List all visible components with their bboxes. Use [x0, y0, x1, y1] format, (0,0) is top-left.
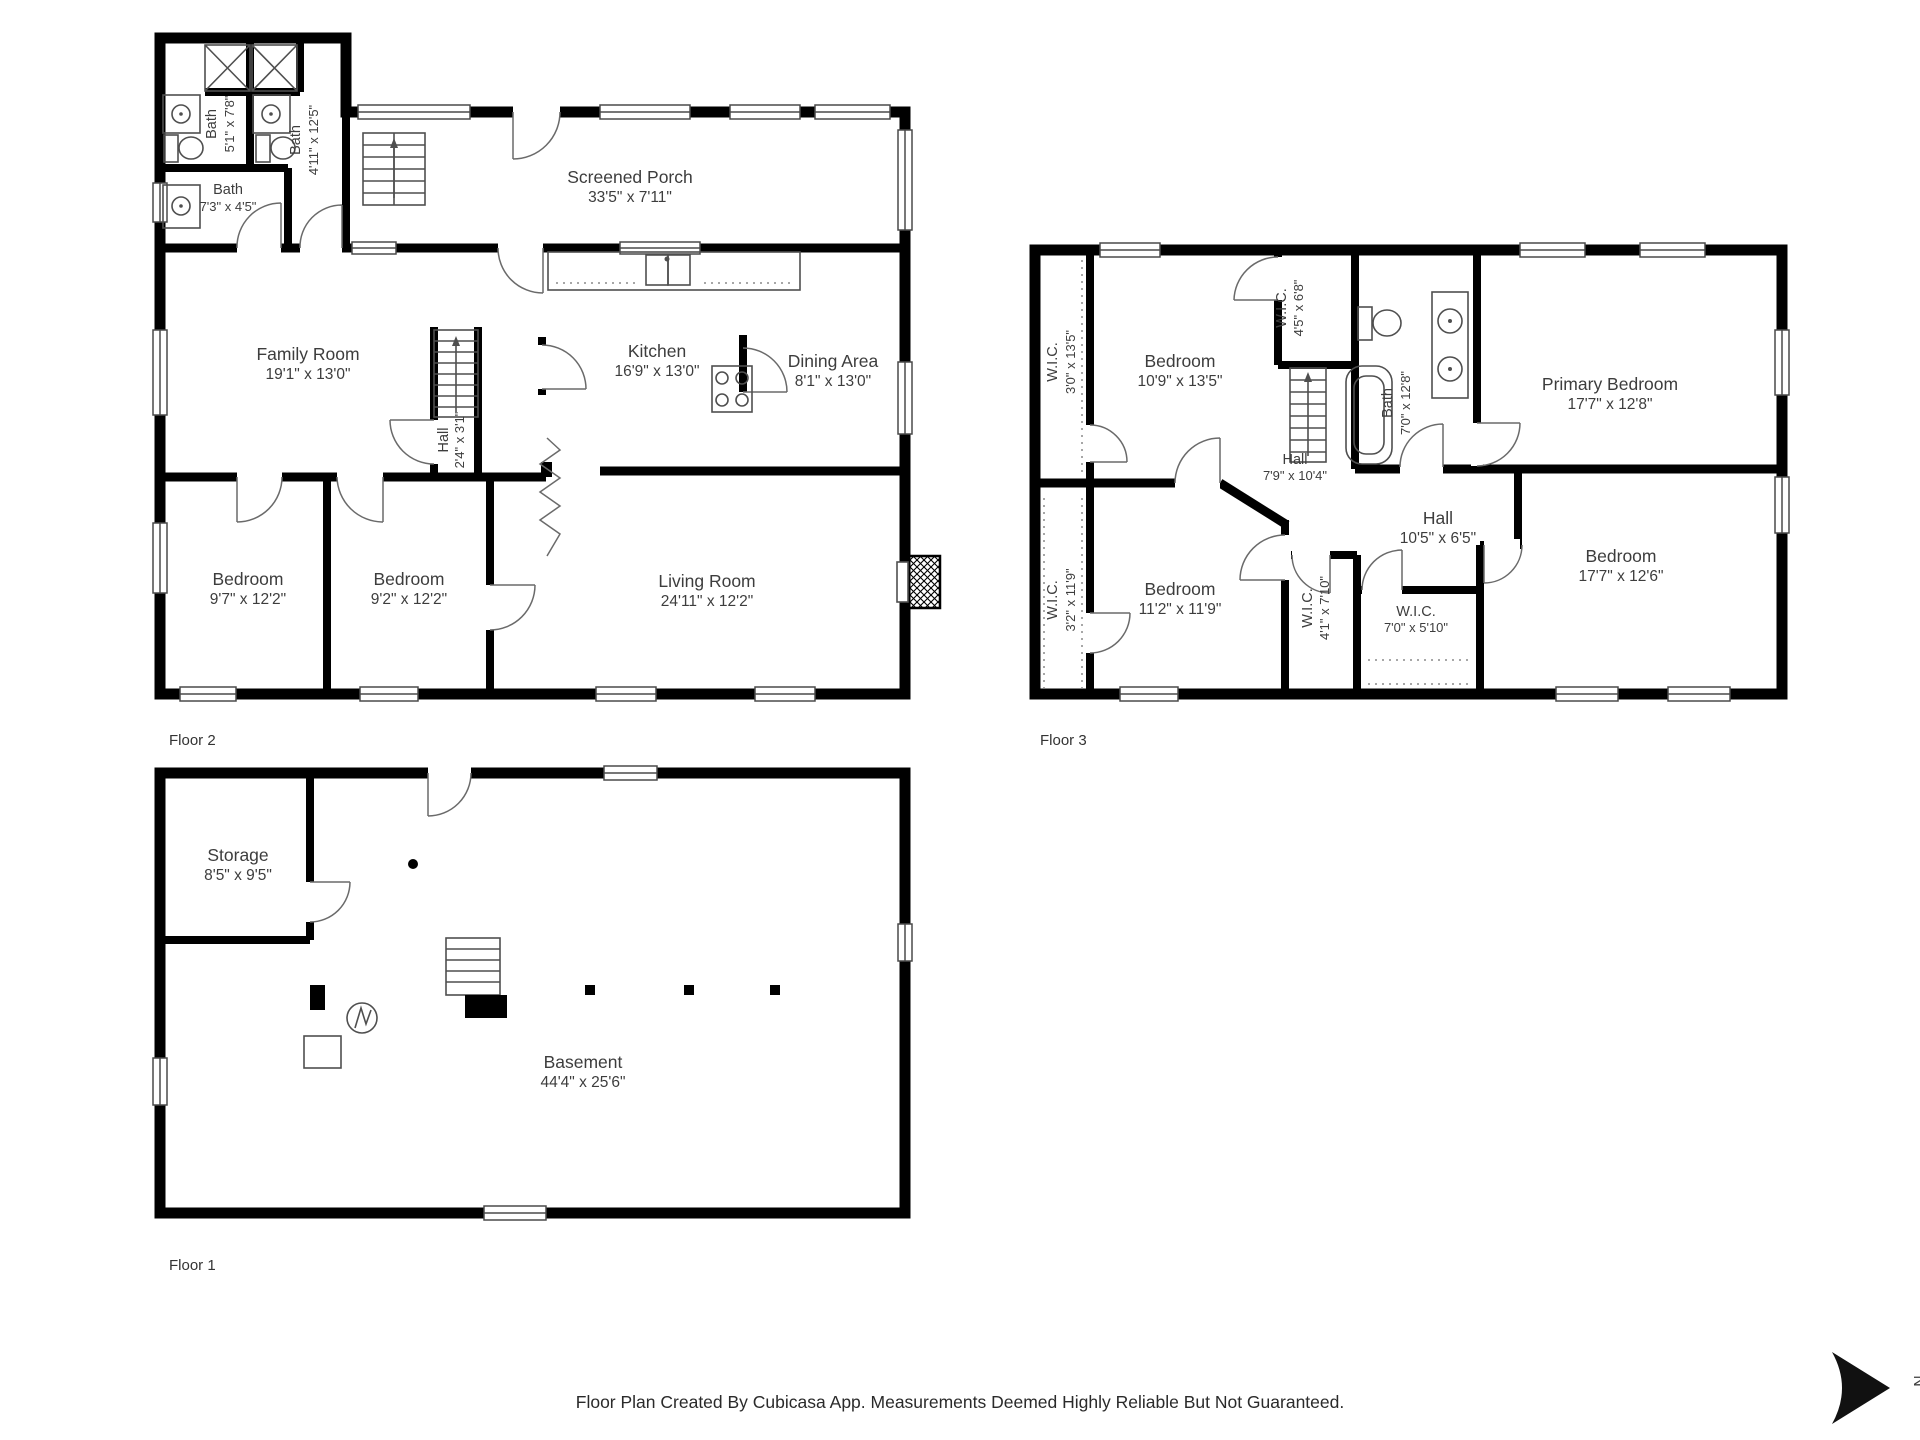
window: [153, 183, 167, 222]
north-arrow-icon: N: [1832, 1352, 1920, 1424]
window: [153, 1058, 167, 1105]
room-dims-bedroom-17-7: 17'7" x 12'6": [1578, 568, 1663, 585]
window: [153, 330, 167, 415]
window: [730, 105, 800, 119]
room-dims-screened-porch: 33'5" x 7'11": [588, 189, 672, 206]
room-dims-wic-7-0: 7'0" x 5'10": [1384, 620, 1448, 635]
shower-icon: [252, 45, 297, 91]
room-label-bath-2: Bath: [288, 125, 304, 155]
room-label-bedroom-17-7: Bedroom: [1585, 546, 1656, 566]
room-dims-living-room: 24'11" x 12'2": [661, 593, 753, 610]
floor-plan-canvas: Bath 5'1" x 7'8" Bath 4'11" x 12'5" Bath…: [0, 0, 1920, 1440]
window: [1520, 243, 1585, 257]
floor-2-label: Floor 2: [169, 732, 216, 749]
floor-1-fixtures: [304, 859, 780, 1068]
floor-1-label: Floor 1: [169, 1257, 216, 1274]
room-dims-basement: 44'4" x 25'6": [540, 1074, 625, 1091]
room-dims-bedroom-1: 9'7" x 12'2": [210, 591, 286, 608]
room-dims-bedroom-10-9: 10'9" x 13'5": [1137, 373, 1222, 390]
room-label-dining-area: Dining Area: [788, 351, 879, 371]
room-dims-bath-1: 5'1" x 7'8": [222, 95, 237, 152]
room-label-bedroom-2: Bedroom: [373, 569, 444, 589]
floorplan-page: Bath 5'1" x 7'8" Bath 4'11" x 12'5" Bath…: [0, 0, 1920, 1440]
room-label-bath-3: Bath: [213, 182, 243, 198]
room-dims-primary-bedroom: 17'7" x 12'8": [1567, 396, 1652, 413]
window: [898, 924, 912, 961]
window: [180, 687, 236, 701]
shower-icon: [205, 45, 250, 91]
floor-1-labels: Storage 8'5" x 9'5" Basement 44'4" x 25'…: [204, 845, 625, 1091]
window: [1775, 477, 1789, 533]
window: [153, 523, 167, 593]
room-dims-bath-f3: 7'0" x 12'8": [1398, 371, 1413, 435]
room-label-bedroom-1: Bedroom: [212, 569, 283, 589]
room-dims-wic-4-1: 4'1" x 7'10": [1317, 576, 1332, 640]
room-label-bath-f3: Bath: [1380, 388, 1396, 418]
room-dims-bedroom-11-2: 11'2" x 11'9": [1139, 601, 1222, 618]
room-label-wic-4-1: W.I.C.: [1300, 588, 1316, 627]
support-post: [684, 985, 694, 995]
sink-icon: [253, 95, 290, 133]
support-post: [770, 985, 780, 995]
window: [1120, 687, 1178, 701]
room-label-screened-porch: Screened Porch: [567, 167, 693, 187]
closet-rod-dashes: [1368, 660, 1468, 684]
window: [360, 687, 418, 701]
window: [898, 130, 912, 230]
window: [1775, 330, 1789, 395]
vanity-sink-icon: [1432, 292, 1468, 398]
north-label: N: [1910, 1375, 1920, 1387]
floor-2-windows: [153, 105, 912, 701]
toilet-icon: [164, 135, 203, 162]
room-label-living-room: Living Room: [658, 571, 755, 591]
floor-3-plan: W.I.C. 3'0" x 13'5" Bedroom 10'9" x 13'5…: [1035, 243, 1789, 749]
floor-1-windows: [153, 766, 912, 1220]
stairs-icon: [446, 938, 507, 1018]
room-label-storage: Storage: [207, 845, 268, 865]
room-dims-dining-area: 8'1" x 13'0": [795, 373, 871, 390]
toilet-icon: [1358, 307, 1401, 340]
room-label-kitchen: Kitchen: [628, 341, 686, 361]
room-label-primary-bedroom: Primary Bedroom: [1542, 374, 1678, 394]
utility-box: [304, 1036, 341, 1068]
window: [755, 687, 815, 701]
stairs-icon: [363, 133, 425, 205]
room-dims-bedroom-2: 9'2" x 12'2": [371, 591, 447, 608]
room-dims-hall-7-9: 7'9" x 10'4": [1263, 468, 1327, 483]
room-label-family-room: Family Room: [256, 344, 359, 364]
window: [898, 362, 912, 434]
stairs-icon: [434, 330, 478, 417]
room-dims-storage: 8'5" x 9'5": [204, 867, 272, 884]
window: [1640, 243, 1705, 257]
room-label-hall-7-9: Hall: [1283, 452, 1308, 468]
support-post: [585, 985, 595, 995]
support-post: [408, 859, 418, 869]
room-dims-bath-3: 7'3" x 4'5": [200, 199, 257, 214]
sink-icon: [163, 95, 200, 133]
room-label-hall-10-5: Hall: [1423, 508, 1453, 528]
room-label-bedroom-10-9: Bedroom: [1144, 351, 1215, 371]
room-dims-wic-3-2: 3'2" x 11'9": [1063, 568, 1078, 631]
wall-opening-zigzag: [540, 438, 560, 556]
room-dims-kitchen: 16'9" x 13'0": [614, 363, 699, 380]
room-label-wic-top-left: W.I.C.: [1045, 342, 1061, 381]
room-dims-hall-10-5: 10'5" x 6'5": [1400, 530, 1476, 547]
room-label-hall-f2: Hall: [436, 428, 452, 453]
pump-icon: [347, 1003, 377, 1033]
window: [1100, 243, 1160, 257]
room-label-bath-1: Bath: [204, 109, 220, 139]
window: [358, 105, 470, 119]
kitchen-counter: [548, 252, 800, 290]
floor-2-plan: Bath 5'1" x 7'8" Bath 4'11" x 12'5" Bath…: [153, 33, 940, 749]
room-dims-wic-top-left: 3'0" x 13'5": [1063, 330, 1078, 394]
fireplace-icon: [897, 556, 940, 608]
floor-1-door-gaps: [304, 766, 471, 922]
sink-icon: [163, 185, 200, 228]
window: [600, 105, 690, 119]
room-label-bedroom-11-2: Bedroom: [1144, 579, 1215, 599]
window: [815, 105, 890, 119]
utility-unit: [310, 985, 325, 1010]
floor-3-label: Floor 3: [1040, 732, 1087, 749]
window: [484, 1206, 546, 1220]
floor-2-fixtures: [163, 45, 940, 608]
floor-1-doors: [310, 773, 471, 922]
window: [1668, 687, 1730, 701]
room-dims-wic-4-5: 4'5" x 6'8": [1291, 279, 1306, 336]
window: [604, 766, 657, 780]
window: [352, 242, 396, 254]
floor-1-walls: [160, 773, 905, 1213]
room-label-wic-7-0: W.I.C.: [1396, 604, 1435, 620]
room-label-wic-3-2: W.I.C.: [1045, 580, 1061, 619]
floor-1-plan: Storage 8'5" x 9'5" Basement 44'4" x 25'…: [153, 766, 912, 1274]
plan-caption: Floor Plan Created By Cubicasa App. Meas…: [0, 1392, 1920, 1413]
room-dims-hall-f2: 2'4" x 3'1": [452, 411, 467, 468]
room-dims-bath-2: 4'11" x 12'5": [306, 104, 321, 175]
room-dims-family-room: 19'1" x 13'0": [265, 366, 350, 383]
room-label-wic-4-5: W.I.C.: [1274, 288, 1290, 327]
room-label-basement: Basement: [544, 1052, 623, 1072]
window: [596, 687, 656, 701]
stairs-icon: [1290, 368, 1326, 462]
window: [1556, 687, 1618, 701]
